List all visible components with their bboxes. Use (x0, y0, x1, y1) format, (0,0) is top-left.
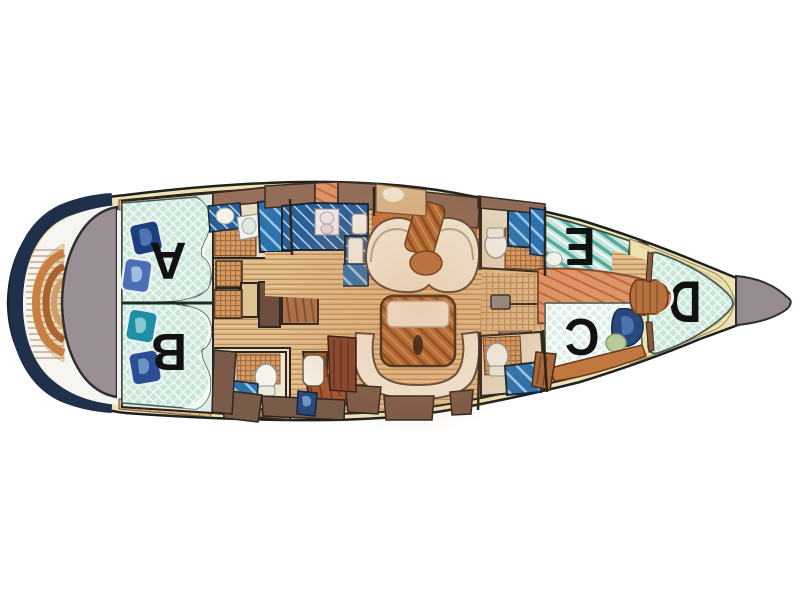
svg-text:B: B (151, 322, 187, 380)
svg-text:E: E (565, 216, 596, 276)
svg-text:C: C (565, 307, 600, 365)
svg-text:A: A (150, 231, 187, 289)
